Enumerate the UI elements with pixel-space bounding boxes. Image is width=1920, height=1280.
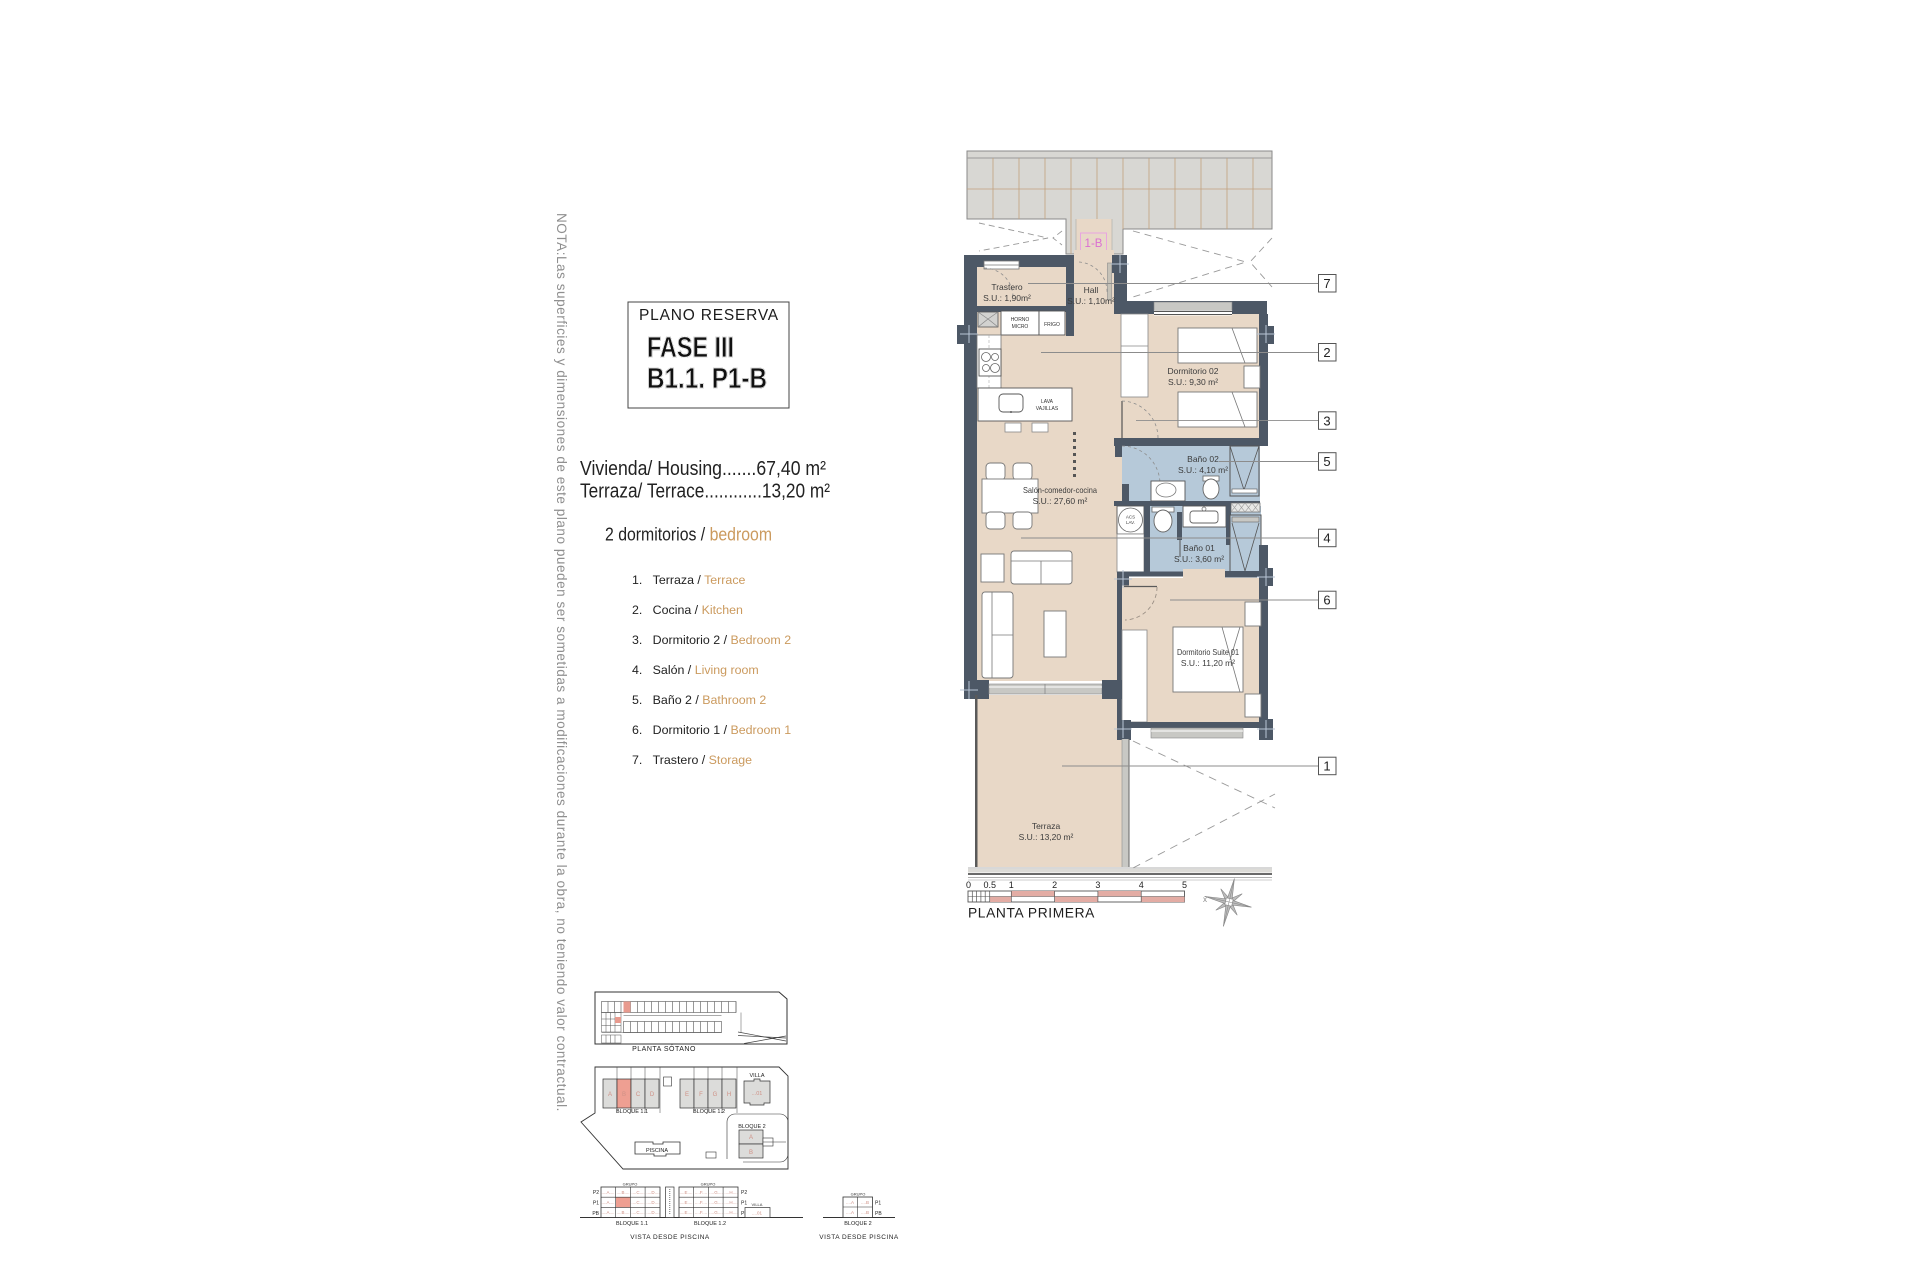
svg-text:1. Terraza / Terrace: 1. Terraza / Terrace: [632, 573, 746, 587]
svg-text:....G....: ....G....: [709, 1190, 723, 1195]
svg-text:P1: P1: [741, 1201, 747, 1207]
svg-text:....D....: ....D....: [646, 1210, 659, 1215]
svg-text:BLOQUE 1.1: BLOQUE 1.1: [616, 1221, 648, 1227]
svg-text:A: A: [608, 1092, 612, 1098]
svg-text:3. Dormitorio 2 / Bedroom 2: 3. Dormitorio 2 / Bedroom 2: [632, 633, 791, 647]
svg-text:S.U.: 1,10m²: S.U.: 1,10m²: [1067, 296, 1115, 306]
svg-text:....F....: ....F....: [695, 1210, 707, 1215]
svg-text:....H....: ....H....: [724, 1200, 737, 1205]
svg-text:S.U.: 1,90m²: S.U.: 1,90m²: [983, 293, 1031, 303]
svg-text:Vivienda/ Housing.......67,40: Vivienda/ Housing.......67,40 m²: [580, 457, 826, 480]
svg-text:4: 4: [1139, 880, 1144, 890]
svg-text:x: x: [1203, 895, 1207, 904]
svg-text:4. Salón / Living room: 4. Salón / Living room: [632, 663, 759, 677]
svg-text:....C....: ....C....: [631, 1210, 644, 1215]
svg-text:P2: P2: [741, 1190, 747, 1196]
svg-text:H: H: [727, 1092, 731, 1098]
svg-text:....A....: ....A....: [601, 1210, 614, 1215]
svg-text:7: 7: [1323, 276, 1330, 291]
svg-text:....E....: ....E....: [679, 1200, 692, 1205]
svg-text:....F....: ....F....: [695, 1190, 707, 1195]
svg-text:P1: P1: [593, 1201, 599, 1207]
svg-text:PB: PB: [875, 1211, 882, 1217]
svg-text:Hall: Hall: [1084, 285, 1099, 295]
svg-text:Baño 01: Baño 01: [1183, 543, 1215, 553]
svg-text:E: E: [685, 1092, 689, 1098]
svg-text:2: 2: [1052, 880, 1057, 890]
svg-text:Terraza/ Terrace............13: Terraza/ Terrace............13,20 m²: [580, 480, 830, 503]
svg-text:6: 6: [1323, 593, 1330, 608]
svg-text:....A....: ....A....: [601, 1200, 614, 1205]
svg-text:....A....: ....A....: [601, 1190, 614, 1195]
svg-text:....E....: ....E....: [679, 1210, 692, 1215]
svg-text:5: 5: [1323, 454, 1330, 469]
svg-text:...01: ...01: [752, 1091, 763, 1097]
svg-text:S.U.: 13,20 m²: S.U.: 13,20 m²: [1019, 832, 1074, 842]
svg-text:....C....: ....C....: [631, 1200, 644, 1205]
svg-text:1-B: 1-B: [1085, 238, 1103, 250]
svg-text:....A: ....A: [846, 1200, 854, 1205]
svg-text:BLOQUE 1.2: BLOQUE 1.2: [693, 1109, 725, 1115]
svg-text:....H....: ....H....: [724, 1190, 737, 1195]
svg-text:S.U.: 3,60 m²: S.U.: 3,60 m²: [1174, 554, 1224, 564]
svg-text:PLANTA SÓTANO: PLANTA SÓTANO: [632, 1044, 696, 1053]
svg-text:Dormitorio 02: Dormitorio 02: [1167, 366, 1218, 376]
svg-text:5: 5: [1182, 880, 1187, 890]
svg-text:....B: ....B: [861, 1200, 869, 1205]
svg-text:B: B: [749, 1150, 753, 1156]
svg-text:Baño 02: Baño 02: [1187, 454, 1219, 464]
svg-text:....H....: ....H....: [724, 1210, 737, 1215]
svg-text:7. Trastero / Storage: 7. Trastero / Storage: [632, 753, 752, 767]
svg-text:S.U.: 11,20 m²: S.U.: 11,20 m²: [1181, 658, 1235, 668]
svg-text:A: A: [749, 1135, 753, 1141]
svg-text:6. Dormitorio 1 / Bedroom 1: 6. Dormitorio 1 / Bedroom 1: [632, 723, 791, 737]
svg-text:S.U.: 4,10 m²: S.U.: 4,10 m²: [1178, 465, 1228, 475]
svg-text:BLOQUE 1.2: BLOQUE 1.2: [694, 1221, 726, 1227]
svg-text:GRUPO: GRUPO: [851, 1192, 866, 1197]
svg-text:FASE III: FASE III: [647, 332, 734, 364]
svg-text:PISCINA: PISCINA: [646, 1148, 668, 1154]
svg-text:S.U.: 27,60 m²: S.U.: 27,60 m²: [1033, 496, 1088, 506]
svg-text:VISTA DESDE PISCINA: VISTA DESDE PISCINA: [819, 1234, 899, 1241]
svg-text:3: 3: [1095, 880, 1100, 890]
svg-text:2. Cocina / Kitchen: 2. Cocina / Kitchen: [632, 603, 743, 617]
svg-text:BLOQUE 2: BLOQUE 2: [844, 1221, 872, 1227]
svg-text:0.5: 0.5: [983, 880, 996, 890]
svg-text:P2: P2: [593, 1190, 599, 1196]
svg-text:B: B: [622, 1092, 626, 1098]
svg-text:LAV.: LAV.: [1126, 520, 1135, 525]
svg-text:BLOQUE 2: BLOQUE 2: [738, 1124, 766, 1130]
svg-text:G: G: [713, 1092, 718, 1098]
svg-text:F: F: [699, 1092, 703, 1098]
svg-text:....B....: ....B....: [616, 1190, 629, 1195]
svg-text:VISTA DESDE PISCINA: VISTA DESDE PISCINA: [630, 1234, 710, 1241]
svg-text:....D....: ....D....: [646, 1190, 659, 1195]
svg-text:....B....: ....B....: [616, 1210, 629, 1215]
svg-text:4: 4: [1323, 531, 1330, 546]
svg-text:2: 2: [1323, 345, 1330, 360]
svg-text:....C....: ....C....: [631, 1190, 644, 1195]
svg-text:....01: ....01: [752, 1211, 763, 1216]
svg-text:....E....: ....E....: [679, 1190, 692, 1195]
svg-text:....F....: ....F....: [695, 1200, 707, 1205]
svg-text:2 dormitorios / bedroom: 2 dormitorios / bedroom: [605, 525, 772, 545]
svg-text:GRUPO: GRUPO: [701, 1182, 716, 1187]
svg-text:1: 1: [1323, 759, 1330, 774]
svg-text:B1.1. P1-B: B1.1. P1-B: [647, 363, 767, 395]
svg-text:....G....: ....G....: [709, 1210, 723, 1215]
svg-text:3: 3: [1323, 413, 1330, 428]
svg-text:ACS: ACS: [1126, 515, 1135, 520]
svg-text:D: D: [650, 1092, 655, 1098]
svg-text:1: 1: [1009, 880, 1014, 890]
svg-text:....D....: ....D....: [646, 1200, 659, 1205]
svg-text:P1: P1: [875, 1201, 881, 1207]
svg-text:Dormitorio Suite 01: Dormitorio Suite 01: [1177, 647, 1239, 657]
svg-text:....B: ....B: [861, 1210, 869, 1215]
svg-text:PLANO RESERVA: PLANO RESERVA: [639, 307, 779, 324]
svg-text:S.U.: 9,30 m²: S.U.: 9,30 m²: [1168, 377, 1218, 387]
svg-text:Trastero: Trastero: [991, 282, 1023, 292]
svg-text:GRUPO: GRUPO: [623, 1182, 638, 1187]
svg-text:HORNO: HORNO: [1011, 317, 1030, 323]
svg-text:Salón-comedor-cocina: Salón-comedor-cocina: [1023, 485, 1097, 495]
svg-text:VAJILLAS: VAJILLAS: [1036, 406, 1059, 412]
svg-text:BLOQUE 1.1: BLOQUE 1.1: [616, 1109, 648, 1115]
svg-text:Terraza: Terraza: [1032, 821, 1061, 831]
svg-text:VILLA: VILLA: [752, 1202, 763, 1207]
svg-text:NOTA:Las superficies y dimensi: NOTA:Las superficies y dimensiones de es…: [554, 213, 569, 1112]
svg-text:C: C: [636, 1092, 641, 1098]
svg-text:....G....: ....G....: [709, 1200, 723, 1205]
svg-text:LAVA: LAVA: [1041, 399, 1054, 405]
svg-text:5. Baño 2 / Bathroom 2: 5. Baño 2 / Bathroom 2: [632, 693, 766, 707]
svg-text:PB: PB: [592, 1211, 599, 1217]
svg-text:FRIGO: FRIGO: [1044, 322, 1060, 328]
svg-text:PLANTA PRIMERA: PLANTA PRIMERA: [968, 906, 1095, 921]
svg-text:0: 0: [966, 880, 971, 890]
svg-text:....A: ....A: [846, 1210, 854, 1215]
svg-text:MICRO: MICRO: [1012, 324, 1029, 330]
svg-text:VILLA: VILLA: [750, 1073, 765, 1079]
